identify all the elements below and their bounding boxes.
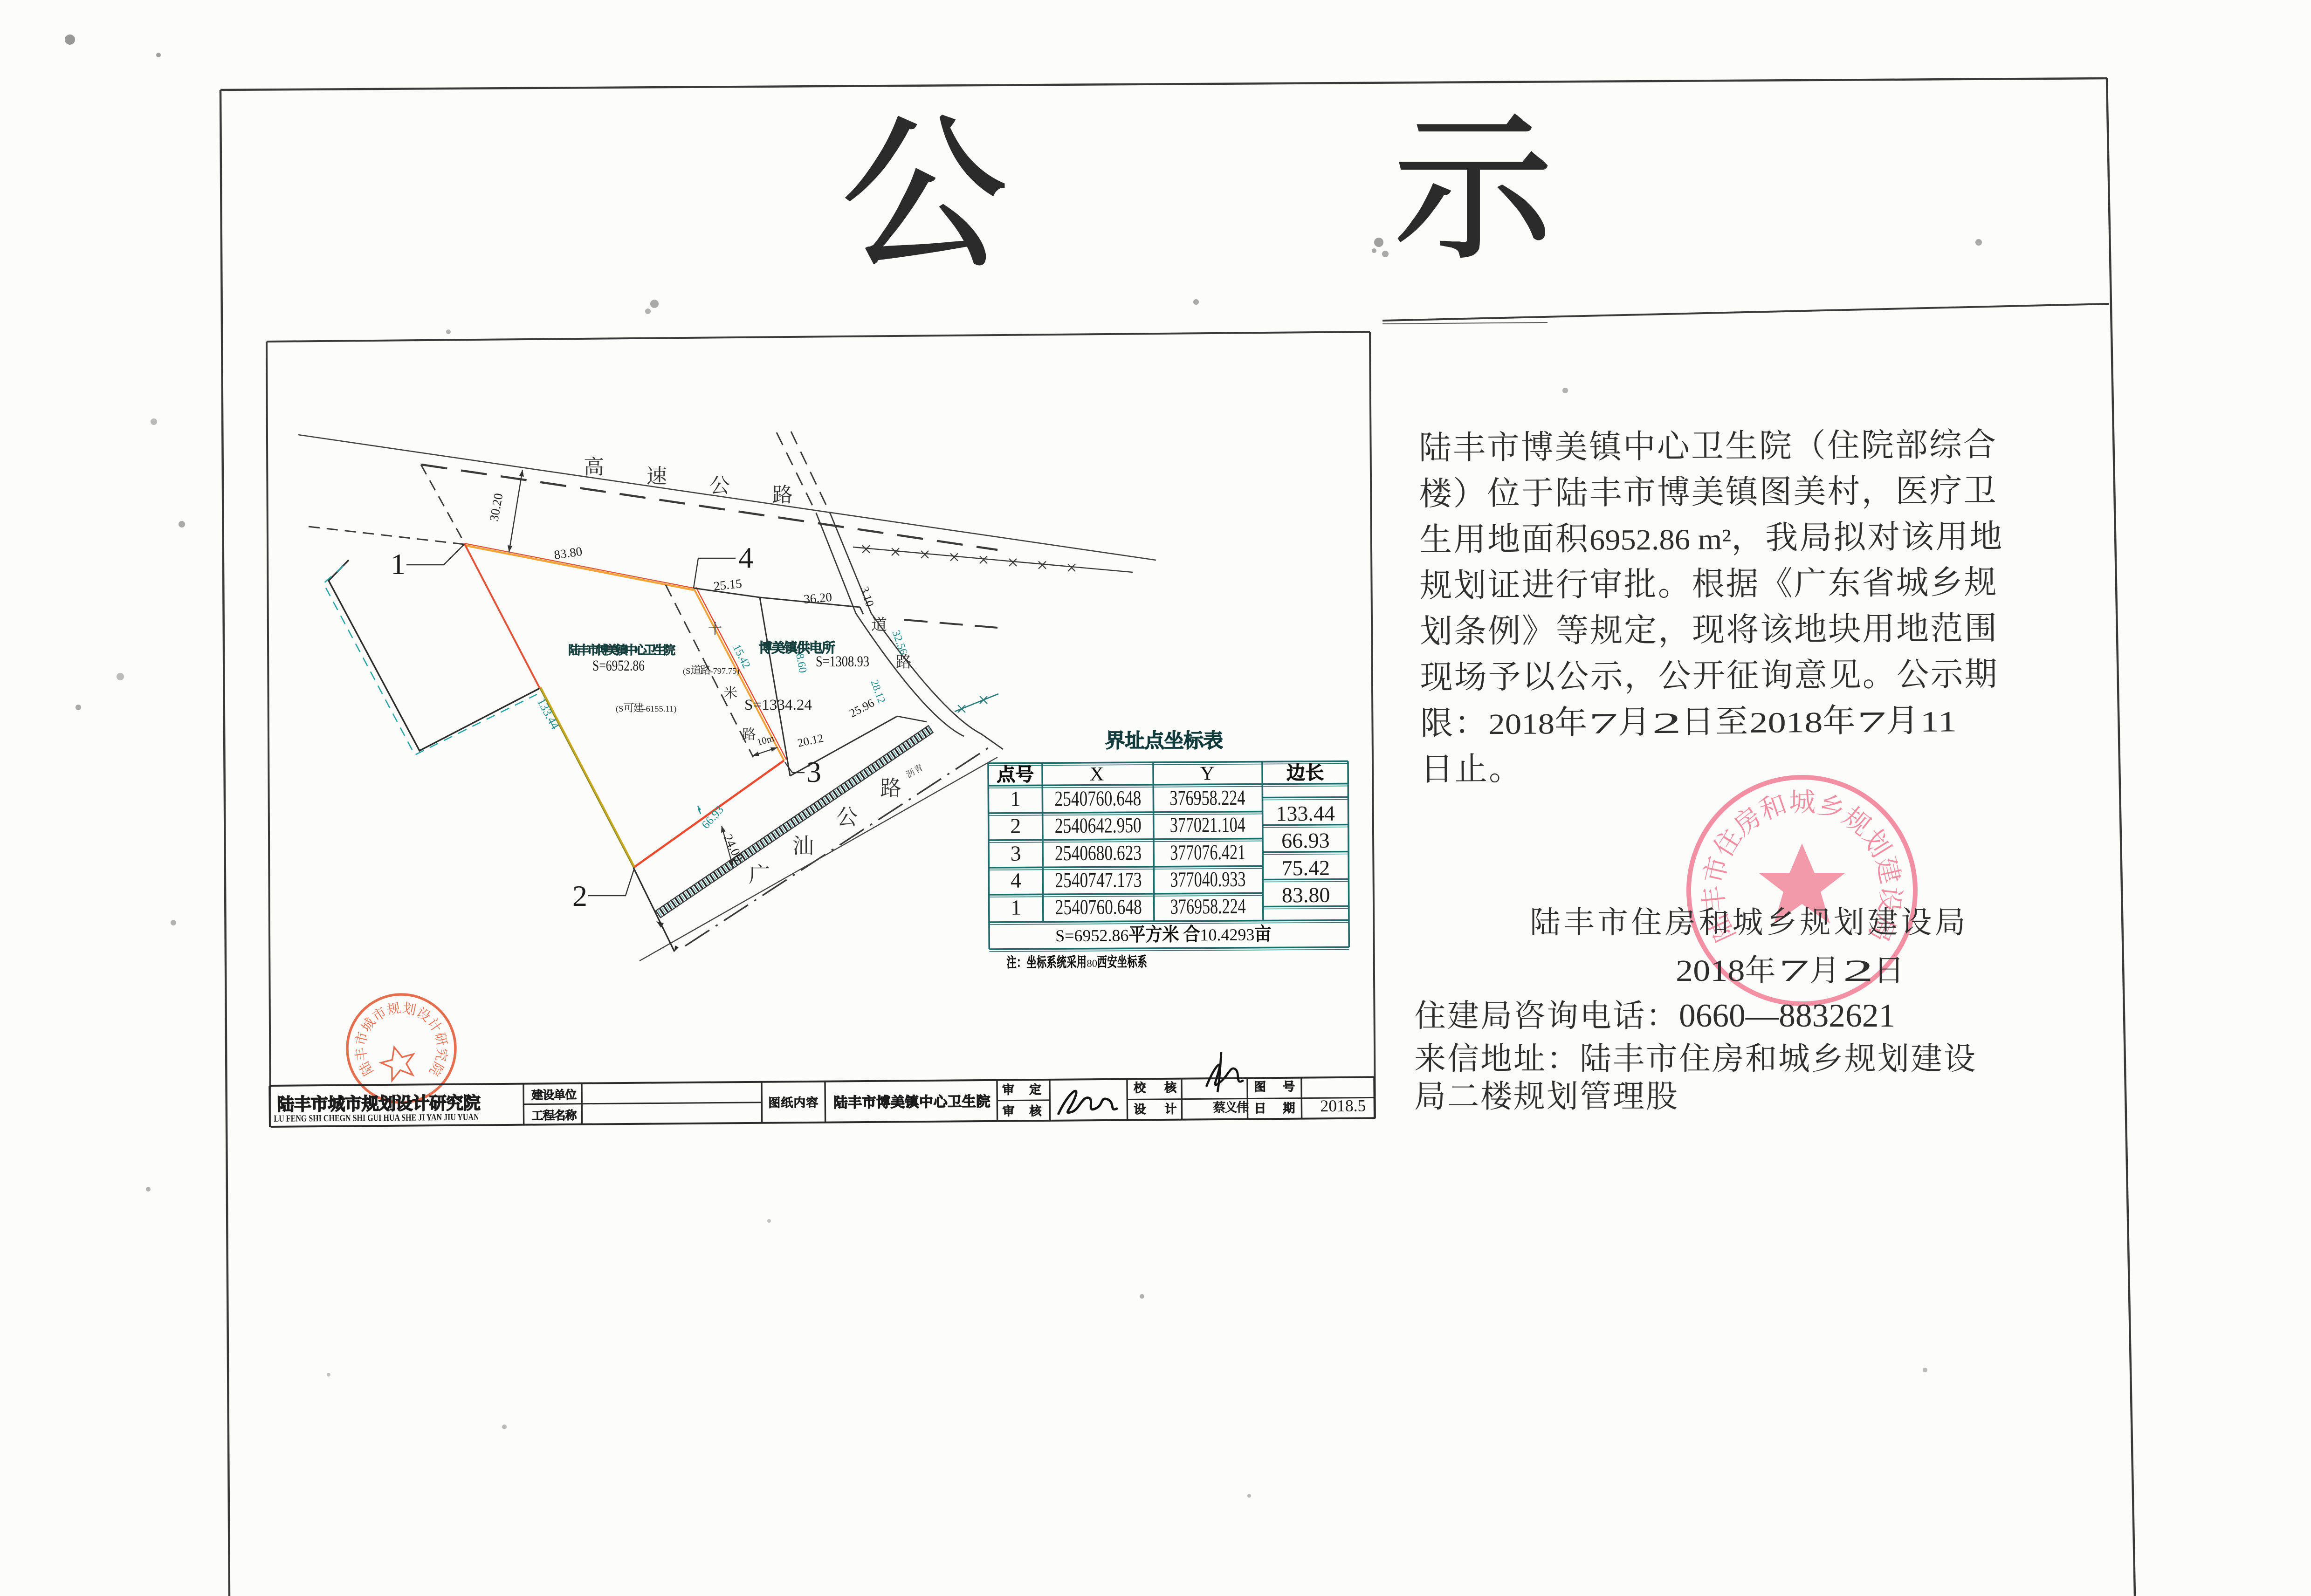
svg-text:36.20: 36.20: [803, 590, 832, 606]
svg-text:1: 1: [391, 548, 406, 581]
svg-text:2540760.648: 2540760.648: [1054, 786, 1141, 810]
svg-text:2: 2: [1652, 707, 1681, 740]
svg-text:0660—8832621: 0660—8832621: [1679, 997, 1895, 1034]
svg-text:2018: 2018: [1749, 706, 1823, 739]
svg-text:-797.75): -797.75): [710, 666, 739, 676]
svg-text:83.80: 83.80: [1282, 883, 1330, 907]
svg-text:1: 1: [1010, 787, 1021, 811]
svg-text:80: 80: [1087, 958, 1097, 969]
svg-text:S=6952.86: S=6952.86: [1055, 926, 1129, 945]
svg-text:25.15: 25.15: [713, 576, 743, 593]
svg-text:Y: Y: [1200, 763, 1215, 784]
svg-text:2: 2: [1010, 814, 1021, 838]
svg-text:133.44: 133.44: [1276, 801, 1335, 826]
svg-text:66.93: 66.93: [1281, 829, 1330, 853]
svg-text:4: 4: [738, 541, 753, 574]
svg-text:7: 7: [1589, 707, 1618, 740]
svg-text:376958.224: 376958.224: [1170, 894, 1246, 918]
svg-text:2540747.173: 2540747.173: [1055, 868, 1142, 892]
svg-text:376958.224: 376958.224: [1169, 786, 1245, 810]
svg-text:10.4293: 10.4293: [1200, 925, 1254, 945]
svg-text:S=6952.86: S=6952.86: [592, 658, 645, 674]
svg-text:4: 4: [1011, 869, 1021, 892]
svg-text:-6155.11): -6155.11): [643, 704, 676, 714]
svg-text:75.42: 75.42: [1281, 856, 1330, 880]
svg-text:1: 1: [1011, 896, 1021, 919]
svg-text:7: 7: [1857, 706, 1886, 738]
svg-text:377021.104: 377021.104: [1170, 813, 1245, 837]
svg-text:3: 3: [806, 755, 821, 788]
svg-text:X: X: [1090, 764, 1104, 785]
svg-text:377040.933: 377040.933: [1170, 867, 1245, 891]
svg-text:2018.5: 2018.5: [1320, 1096, 1366, 1116]
svg-text:11: 11: [1920, 705, 1957, 738]
svg-text:S=1334.24: S=1334.24: [744, 697, 812, 713]
svg-text:6952.86 m²: 6952.86 m²: [1589, 523, 1732, 556]
svg-text:3: 3: [1010, 842, 1021, 865]
svg-text:2: 2: [572, 879, 587, 912]
svg-text:377076.421: 377076.421: [1170, 840, 1245, 864]
svg-text:S=1308.93: S=1308.93: [816, 653, 869, 670]
svg-text:2540760.648: 2540760.648: [1055, 895, 1142, 919]
svg-text:(S: (S: [683, 666, 690, 676]
svg-text:2: 2: [1843, 954, 1874, 988]
svg-text:2018: 2018: [1488, 707, 1554, 740]
svg-text:LU FENG SHI CHEGN SHI GUI HUA: LU FENG SHI CHEGN SHI GUI HUA SHE JI YAN…: [274, 1112, 479, 1123]
svg-text:(S: (S: [616, 704, 623, 714]
svg-text:7: 7: [1779, 954, 1809, 988]
svg-text:2540680.623: 2540680.623: [1055, 841, 1142, 865]
svg-text:2540642.950: 2540642.950: [1055, 813, 1142, 837]
svg-text:2018: 2018: [1676, 954, 1745, 988]
